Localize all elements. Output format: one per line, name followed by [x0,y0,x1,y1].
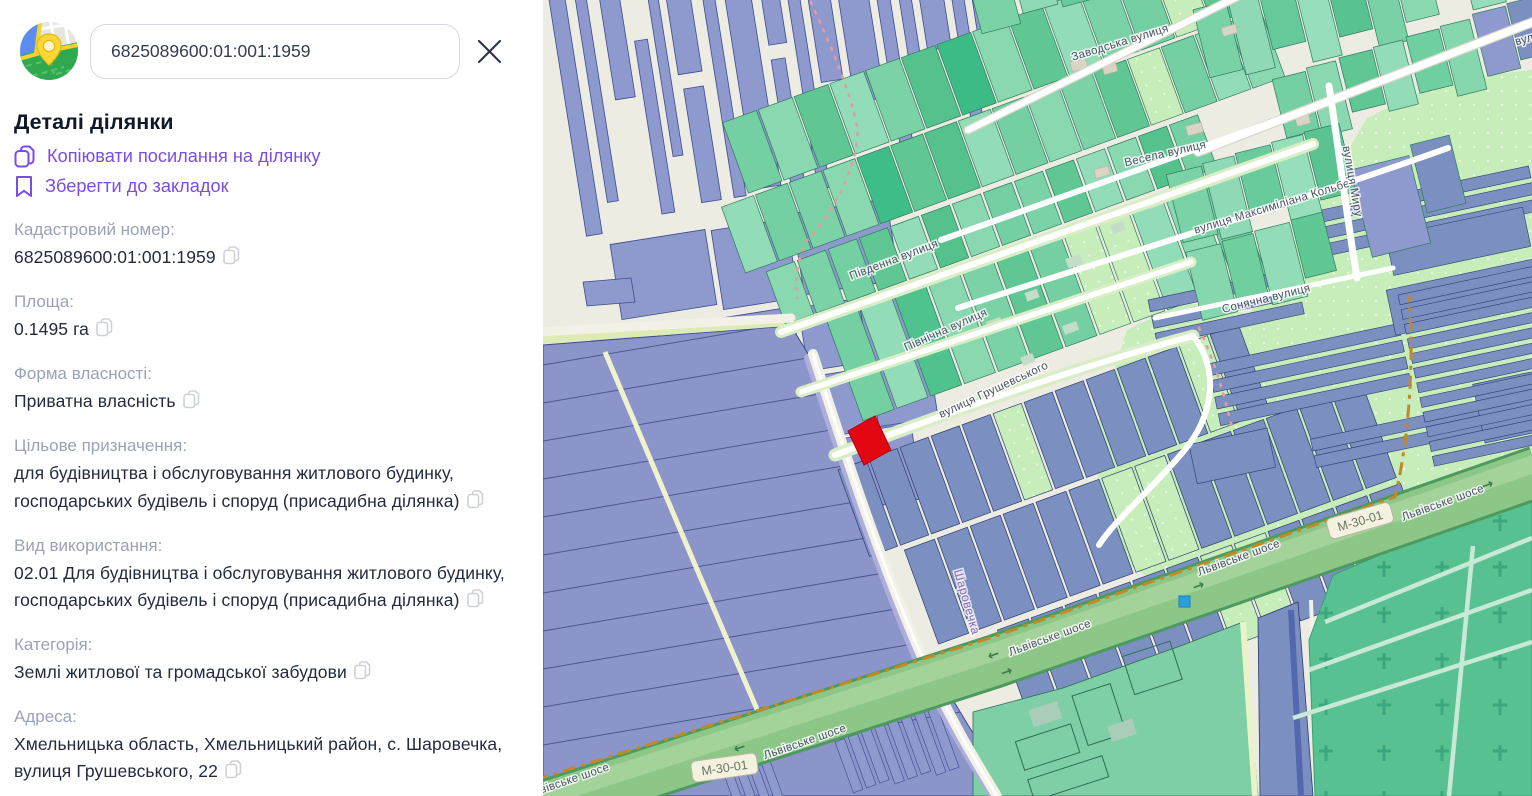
field-value: 6825089600:01:001:1959 [14,244,514,271]
close-button[interactable] [470,32,509,71]
field: Категорія:Землі житлової та громадської … [14,635,523,686]
copy-value-icon[interactable] [183,390,200,409]
field: Цільове призначення:для будівництва і об… [14,436,523,514]
field-value: Приватна власність [14,388,514,415]
close-icon [476,38,503,65]
field-label: Форма власності: [14,364,523,384]
map-svg[interactable]: Заводська вулицявулицяВесела вулицявулиц… [543,0,1532,796]
map-canvas[interactable]: Заводська вулицявулицяВесела вулицявулиц… [543,0,1532,796]
map-logo-icon [20,22,78,80]
bookmark-label: Зберегти до закладок [45,176,229,197]
field-value: для будівництва і обслуговування житлово… [14,460,514,514]
field-value: 02.01 Для будівництва і обслуговування ж… [14,560,514,614]
copy-value-icon[interactable] [225,760,242,779]
field: Адреса:Хмельницька область, Хмельницький… [14,707,523,785]
field-label: Площа: [14,292,523,312]
page-title: Деталі ділянки [14,110,523,135]
bookmark-action[interactable]: Зберегти до закладок [14,175,523,198]
details-panel: Деталі ділянки Копіювати посилання на ді… [0,0,543,796]
copy-value-icon[interactable] [223,246,240,265]
bookmark-icon [14,175,34,198]
field-label: Вид використання: [14,536,523,556]
top-bar [14,22,523,80]
map-marker[interactable] [1179,596,1190,607]
field: Вид використання:02.01 Для будівництва і… [14,536,523,614]
parcel-fields: Кадастровий номер:6825089600:01:001:1959… [14,220,523,785]
field: Кадастровий номер:6825089600:01:001:1959 [14,220,523,271]
copy-link-label: Копіювати посилання на ділянку [47,146,321,167]
copy-link-icon [14,145,36,168]
field-label: Адреса: [14,707,523,727]
copy-value-icon[interactable] [354,661,371,680]
copy-value-icon[interactable] [467,589,484,608]
field-label: Категорія: [14,635,523,655]
copy-value-icon[interactable] [96,318,113,337]
field: Площа:0.1495 га [14,292,523,343]
field-value: Хмельницька область, Хмельницький район,… [14,731,514,785]
copy-link-action[interactable]: Копіювати посилання на ділянку [14,145,523,168]
field-label: Кадастровий номер: [14,220,523,240]
search-input[interactable] [90,24,460,79]
app-logo[interactable] [20,22,78,80]
field: Форма власності:Приватна власність [14,364,523,415]
field-value: Землі житлової та громадської забудови [14,659,514,686]
small-blue-parcel [583,278,635,306]
copy-value-icon[interactable] [467,490,484,509]
field-label: Цільове призначення: [14,436,523,456]
field-value: 0.1495 га [14,316,514,343]
